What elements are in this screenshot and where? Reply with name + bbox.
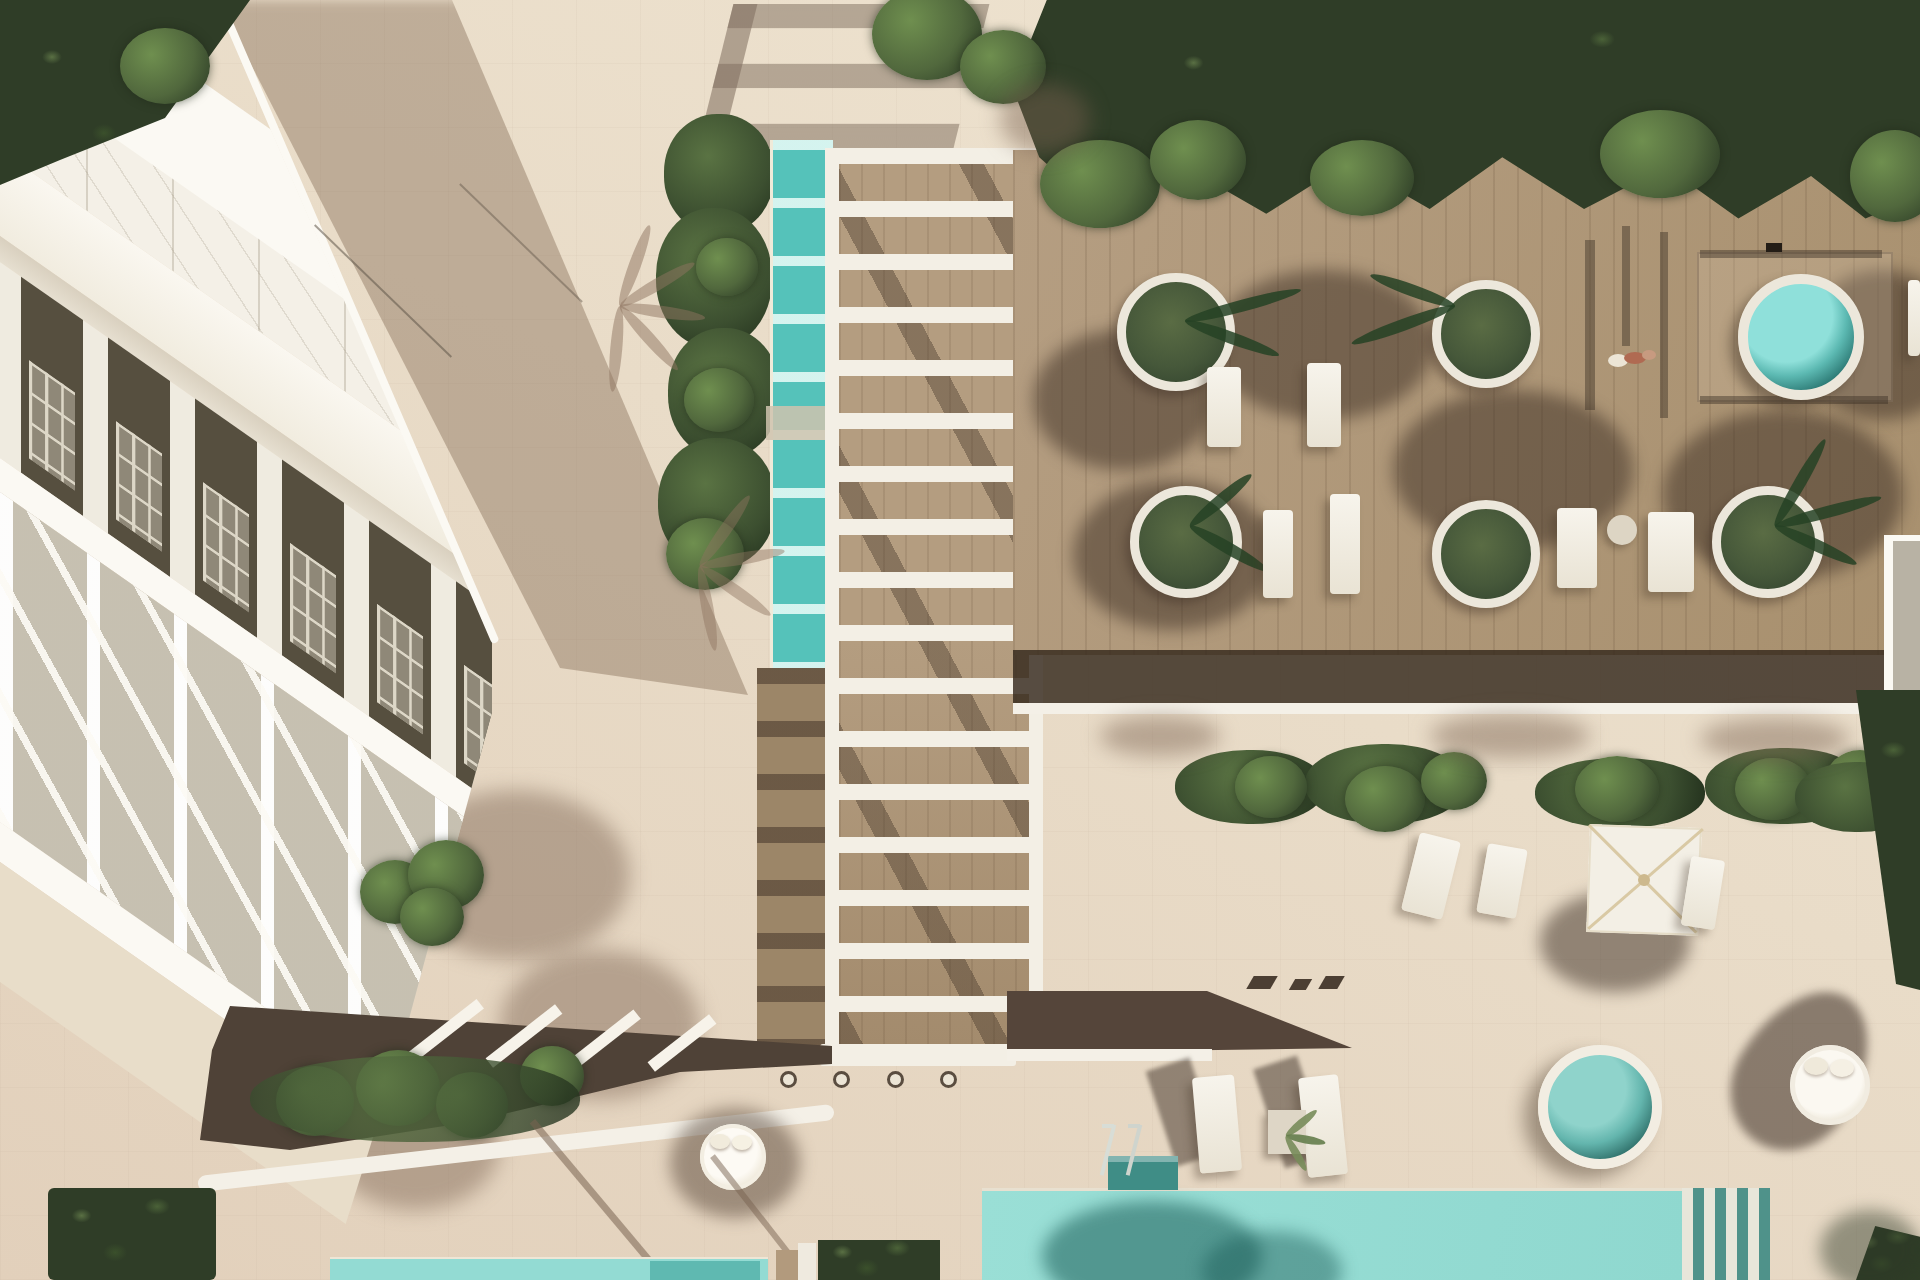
jacuzzi [1538, 1045, 1662, 1169]
hedge-square-s [818, 1240, 940, 1280]
round-daybed [1790, 1045, 1870, 1125]
beam-shadow [1700, 250, 1882, 258]
sun-lounger [1263, 510, 1293, 598]
palm-shadow-blob [1100, 716, 1220, 756]
leafy-bush [1150, 120, 1246, 200]
hedge-patch [250, 1056, 580, 1142]
paver-marker [1246, 976, 1278, 989]
deck-light-dot [833, 1071, 850, 1088]
corner-shadow [1820, 1210, 1920, 1280]
palm-shadow-blob [1700, 718, 1850, 760]
deck-light-dot [780, 1071, 797, 1088]
pool-southwest [330, 1257, 768, 1280]
side-structure [1884, 535, 1920, 715]
sun-lounger [1557, 508, 1597, 588]
sun-lounger [1908, 280, 1920, 356]
round-planter [1432, 500, 1540, 608]
leafy-bush [1600, 110, 1720, 198]
window-grid [290, 543, 336, 673]
window-grid [203, 483, 249, 613]
planter-edge [798, 1243, 816, 1280]
post-shadow [1622, 226, 1630, 346]
pool-steps [1682, 1188, 1770, 1280]
palm-shadow-blob [1000, 84, 1090, 154]
window-grid [116, 422, 162, 552]
paver-marker [1289, 979, 1312, 990]
side-table-round [1607, 515, 1637, 545]
dark-walkway [1007, 991, 1352, 1053]
pergola-bottom-bar [820, 1044, 1016, 1066]
deck-shade-band [1013, 650, 1920, 704]
sun-lounger [1330, 494, 1360, 594]
pergola-walkway [825, 148, 1043, 1046]
leafy-bush [1310, 140, 1414, 216]
pool-bridge [766, 406, 834, 440]
sun-lounger [1648, 512, 1694, 592]
window-grid [377, 604, 423, 734]
aerial-resort-render [0, 0, 1920, 1280]
sun-lounger [1192, 1074, 1242, 1173]
tree-canopy [120, 28, 210, 104]
deck-light-dot [940, 1071, 957, 1088]
window-grid [464, 665, 510, 795]
sun-lounger [1476, 843, 1528, 919]
deck-edge-white [1013, 703, 1920, 714]
post-shadow [1660, 232, 1668, 418]
person-sunbathing [1608, 346, 1662, 374]
sun-lounger [1207, 367, 1241, 447]
walkway-deck [757, 668, 825, 1048]
main-pool [982, 1188, 1682, 1280]
deck-light-dot [887, 1071, 904, 1088]
palm-shadow-blob [1430, 714, 1590, 758]
deck-strip-s [776, 1250, 798, 1280]
plunge-pool [1738, 274, 1864, 400]
fan-palm-cluster [360, 840, 490, 950]
post-shadow [1585, 240, 1595, 410]
pool-ladder [1098, 1124, 1158, 1184]
leafy-bush [1040, 140, 1160, 228]
window-grid [29, 361, 75, 491]
sun-lounger [1401, 832, 1461, 920]
round-planter [1432, 280, 1540, 388]
paver-marker [1318, 976, 1345, 989]
grass-wedge-east [1844, 690, 1920, 990]
sun-lounger [1307, 363, 1341, 447]
hedge-square-sw [48, 1188, 216, 1280]
deck-slot [1766, 243, 1782, 252]
